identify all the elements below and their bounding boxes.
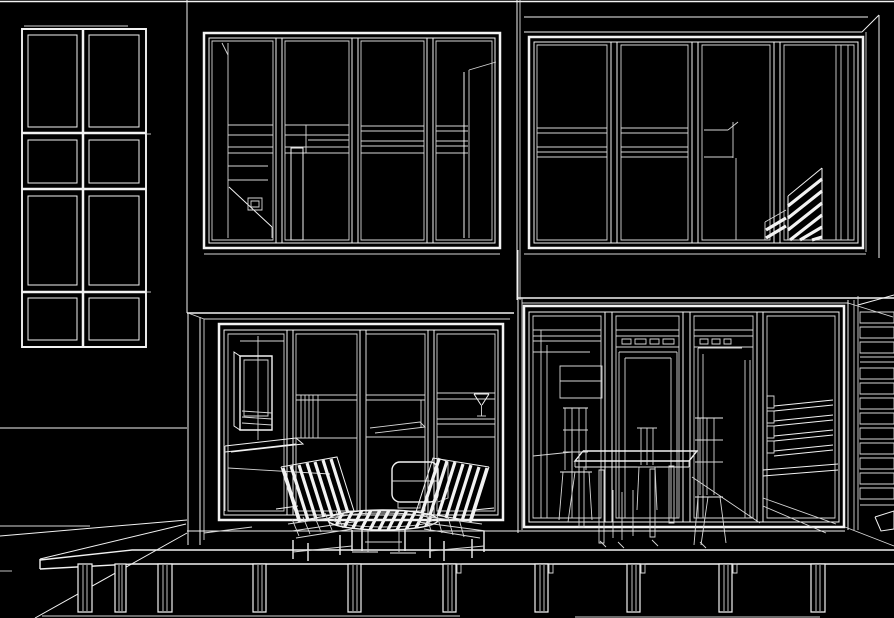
elevation-drawing [0,0,894,618]
background [0,0,894,618]
post [348,564,361,612]
post [719,564,732,612]
post [115,564,126,612]
elevation-drawing-canvas [0,0,894,618]
post [158,564,172,612]
post [253,564,266,612]
post [811,564,825,612]
post [535,564,548,612]
post [443,564,456,612]
post [78,564,92,612]
post [627,564,640,612]
